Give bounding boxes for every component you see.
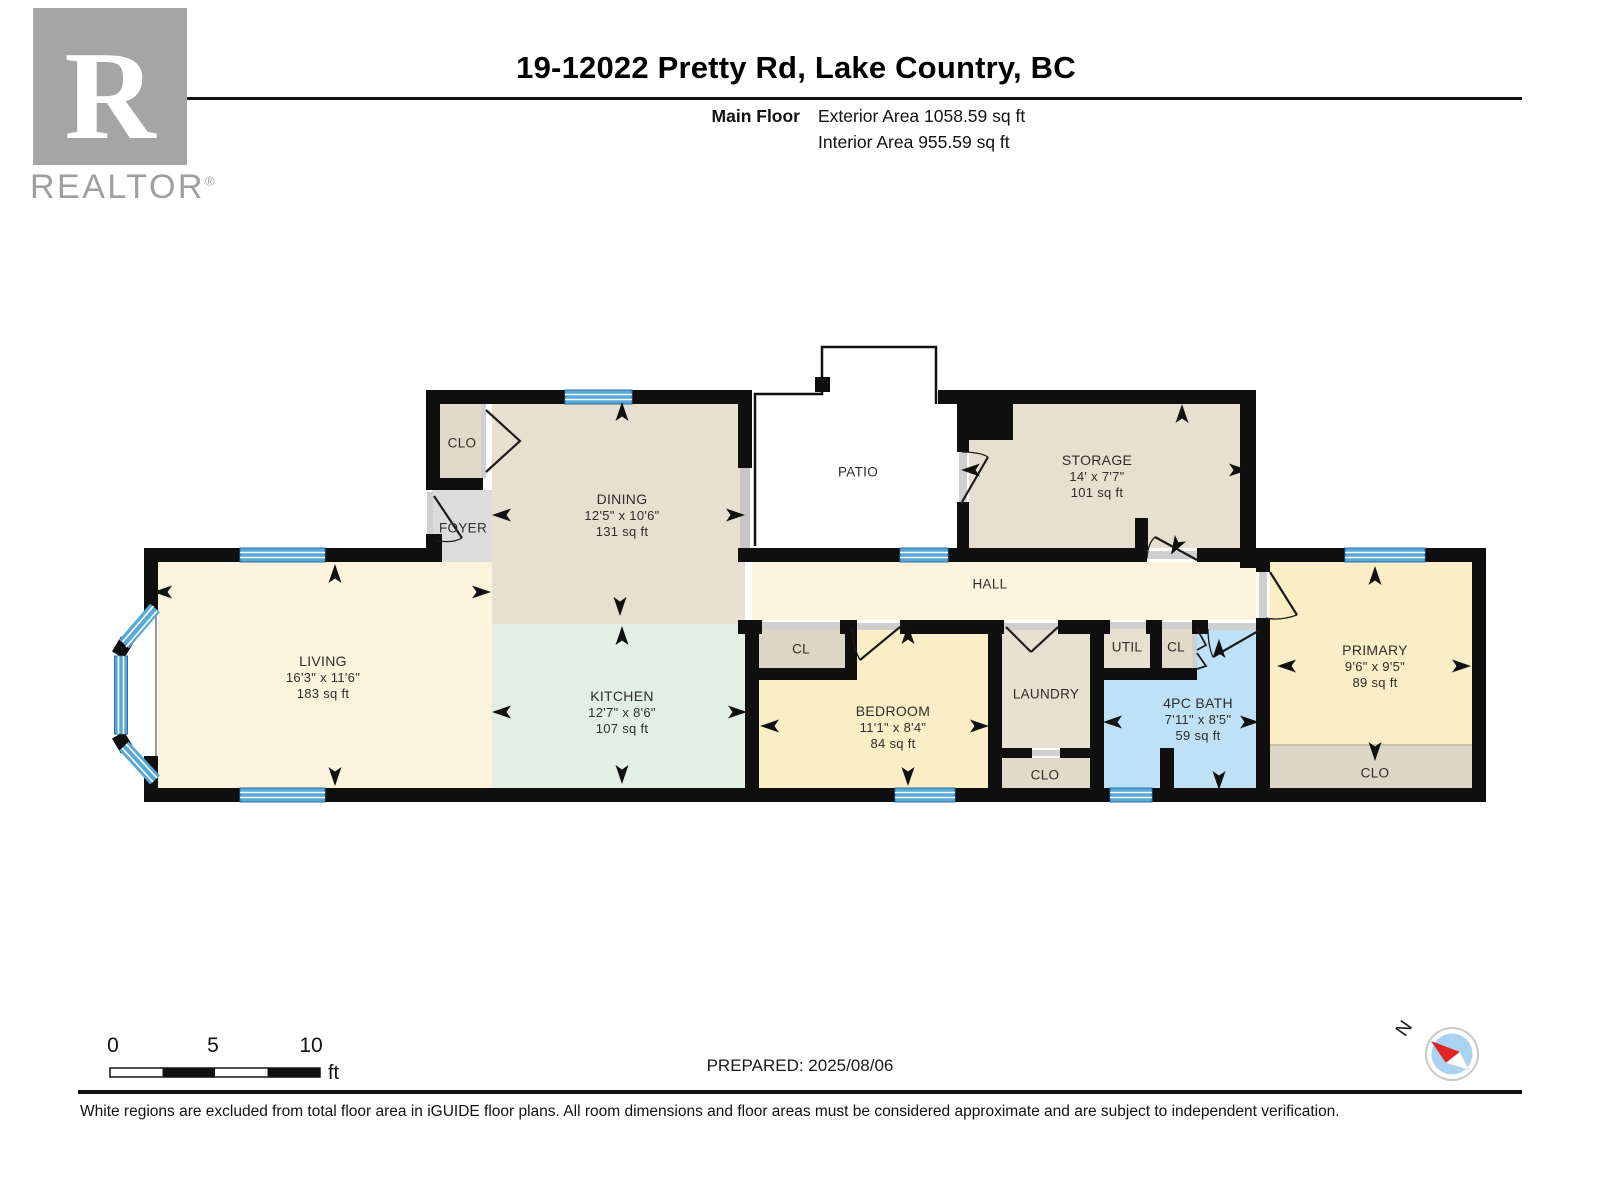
room-label-laundry: LAUNDRY xyxy=(1013,687,1079,702)
room-label-primary: PRIMARY 9'6" x 9'5" 89 sq ft xyxy=(1342,642,1408,690)
room-label-closet-bedroom: CL xyxy=(792,642,810,657)
page-title: 19-12022 Pretty Rd, Lake Country, BC xyxy=(196,50,1396,86)
disclaimer-text: White regions are excluded from total fl… xyxy=(80,1103,1530,1121)
room-label-util: UTIL xyxy=(1112,640,1142,655)
floor-name-label: Main Floor xyxy=(560,106,800,127)
room-label-closet-hall: CL xyxy=(1167,640,1185,655)
scale-tick-0: 0 xyxy=(107,1034,119,1058)
realtor-logo-icon: R xyxy=(33,8,187,166)
room-label-patio: PATIO xyxy=(838,465,878,480)
room-label-dining: DINING 12'5" x 10'6" 131 sq ft xyxy=(584,491,659,539)
room-label-hall: HALL xyxy=(973,577,1008,592)
room-label-storage: STORAGE 14' x 7'7" 101 sq ft xyxy=(1062,452,1132,500)
realtor-logo-text: REALTOR® xyxy=(30,168,217,207)
room-label-kitchen: KITCHEN 12'7" x 8'6" 107 sq ft xyxy=(588,688,656,736)
interior-area-value: Interior Area 955.59 sq ft xyxy=(818,132,1010,153)
room-label-bedroom: BEDROOM 11'1" x 8'4" 84 sq ft xyxy=(856,703,930,751)
footer-rule xyxy=(78,1090,1522,1094)
room-label-closet-primary: CLO xyxy=(1361,766,1390,781)
room-label-foyer: FOYER xyxy=(439,521,487,536)
room-label-closet-laundry: CLO xyxy=(1031,768,1060,783)
floorplan-graphic: R xyxy=(0,0,1600,1200)
header-rule xyxy=(78,97,1522,100)
scale-tick-10: 10 xyxy=(299,1034,322,1058)
room-label-bath: 4PC BATH 7'11" x 8'5" 59 sq ft xyxy=(1163,695,1233,743)
room-label-living: LIVING 16'3" x 11'6" 183 sq ft xyxy=(286,653,360,701)
exterior-area-value: Exterior Area 1058.59 sq ft xyxy=(818,106,1025,127)
svg-text:R: R xyxy=(65,27,158,166)
prepared-date: PREPARED: 2025/08/06 xyxy=(0,1056,1600,1076)
scale-tick-5: 5 xyxy=(207,1034,219,1058)
room-label-closet-entry: CLO xyxy=(448,436,477,451)
